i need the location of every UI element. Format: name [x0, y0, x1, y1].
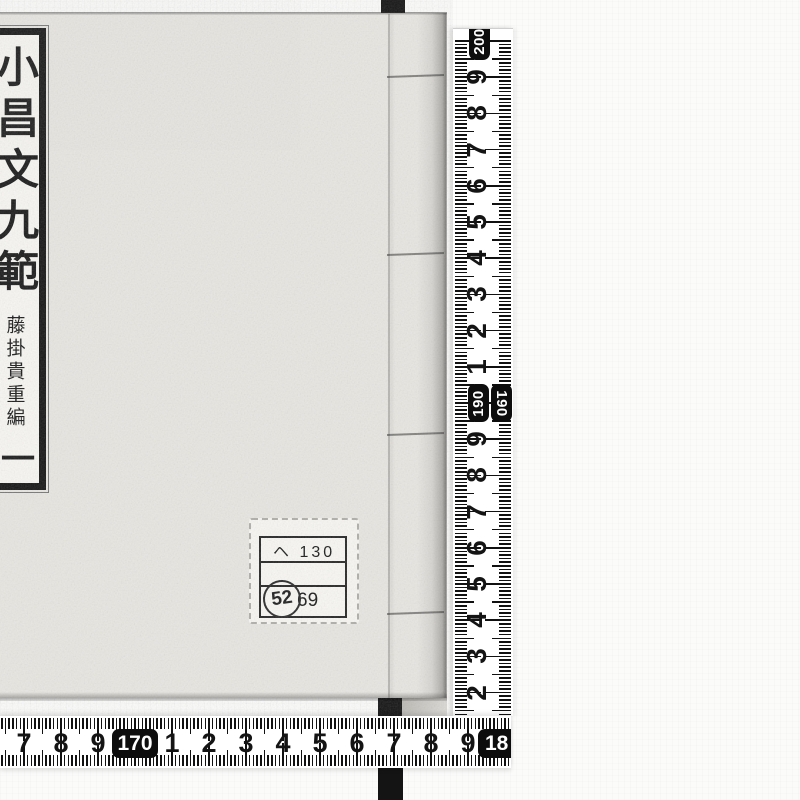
ruler-tick [499, 424, 511, 426]
ruler-label-text: 8 [461, 106, 493, 122]
ruler-tick [190, 750, 192, 766]
ruler-label-text: 9 [460, 728, 475, 759]
ruler-tick [499, 630, 511, 632]
ruler-tick [441, 718, 443, 729]
ruler-tick [499, 199, 511, 201]
book-top-edge [0, 12, 447, 15]
ruler-tick [492, 565, 511, 567]
ruler-tick [499, 500, 511, 502]
ruler-tick [455, 529, 474, 531]
ruler-label-text: 2 [201, 728, 216, 759]
ruler-tick [149, 718, 151, 729]
ruler-decade-label-text: 170 [117, 732, 152, 756]
ruler-tick [499, 652, 511, 654]
ruler-tick [492, 276, 511, 278]
ruler-label-text: 3 [461, 649, 493, 665]
ruler-tick [499, 551, 511, 553]
ruler-label: 1 [157, 729, 187, 758]
ruler-tick [499, 319, 511, 321]
ruler-tick [499, 138, 511, 140]
ruler-tick [499, 688, 511, 690]
ruler-label: 8 [462, 460, 492, 490]
ruler-tick [455, 95, 474, 97]
ruler-tick [5, 718, 7, 734]
ruler-tick [264, 750, 266, 766]
ruler-tick [297, 718, 299, 729]
spine-crease [388, 14, 390, 698]
ruler-tick [455, 638, 474, 640]
sticker-call-number: ヘ 130 [261, 538, 345, 563]
library-sticker: ヘ 130 69 52 [249, 518, 359, 624]
ruler-tick [182, 718, 184, 729]
ruler-tick [499, 359, 511, 361]
ruler-tick [499, 659, 511, 661]
ruler-tick [412, 718, 414, 734]
ruler-label-text: 2 [461, 685, 493, 701]
ruler-tick [42, 718, 44, 734]
ruler-tick [499, 283, 511, 285]
ruler-tick [1, 755, 3, 766]
ruler-tick [260, 718, 262, 729]
ruler-tick [492, 167, 511, 169]
ruler-tick [455, 51, 467, 53]
ruler-label-text: 4 [461, 250, 493, 266]
ruler-label: 7 [462, 135, 492, 165]
ruler-tick [455, 417, 467, 419]
ruler-tick [86, 718, 88, 729]
ruler-tick [499, 428, 511, 430]
ruler-tick [330, 718, 332, 729]
ruler-tick [499, 109, 511, 111]
ruler-tick [42, 750, 44, 766]
ruler-tick [499, 514, 511, 516]
ruler-tick [301, 750, 303, 766]
ruler-tick [499, 460, 511, 462]
ruler-tick [499, 594, 511, 596]
ruler-tick [492, 95, 511, 97]
ruler-tick [338, 718, 340, 734]
ruler-tick [499, 192, 511, 194]
ruler-tick [499, 641, 511, 643]
ruler-tick [455, 239, 474, 241]
ruler-tick [455, 348, 474, 350]
ruler-tick [492, 457, 511, 459]
ruler-tick [499, 598, 511, 600]
ruler-tick [82, 718, 84, 729]
ruler-tick [499, 507, 511, 509]
ruler-tick [449, 750, 451, 766]
ruler-tick [499, 214, 511, 216]
ruler-tick [499, 105, 511, 107]
ruler-tick [308, 718, 310, 729]
ruler-tick [499, 145, 511, 147]
ruler-tick [499, 333, 511, 335]
ruler-tick [499, 73, 511, 75]
ruler-tick [499, 127, 511, 129]
ruler-tick [455, 601, 474, 603]
ruler-tick [499, 337, 511, 339]
ruler-tick [334, 718, 336, 729]
vertical-ruler: 20098765432119019098765432 [453, 28, 513, 716]
ruler-tick [367, 718, 369, 729]
ruler-label: 7 [9, 729, 39, 758]
ruler-tick [160, 718, 162, 729]
ruler-tick [404, 718, 406, 729]
ruler-tick [499, 134, 511, 136]
ruler-tick [127, 718, 129, 729]
ruler-tick [499, 254, 511, 256]
ruler-tick [499, 344, 511, 346]
ruler-tick [499, 572, 511, 574]
ruler-label: 4 [462, 605, 492, 635]
ruler-decade-label-text: 190 [470, 390, 487, 417]
ruler-label-text: 6 [461, 540, 493, 556]
title-label: 小昌文九範 藤掛貴重編 一 [0, 28, 46, 490]
ruler-tick [499, 272, 511, 274]
ruler-tick [499, 84, 511, 86]
ruler-tick [499, 51, 511, 53]
ruler-tick [499, 467, 511, 469]
ruler-tick [186, 718, 188, 729]
ruler-tick [499, 355, 511, 357]
ruler-tick [412, 750, 414, 766]
ruler-tick [489, 718, 491, 729]
ruler-tick [138, 718, 140, 729]
ruler-tick [499, 623, 511, 625]
ruler-tick [499, 301, 511, 303]
ruler-tick [256, 718, 258, 729]
ruler-tick [227, 750, 229, 766]
ruler-tick [345, 718, 347, 729]
ruler-tick [112, 718, 114, 729]
ruler-tick [499, 605, 511, 607]
ruler-tick [499, 323, 511, 325]
ruler-tick [382, 718, 384, 729]
ruler-label-text: 6 [461, 178, 493, 194]
ruler-tick [499, 522, 511, 524]
ruler-label: 8 [46, 729, 76, 758]
ruler-tick [455, 406, 467, 408]
ruler-tick [304, 718, 306, 729]
ruler-tick [499, 446, 511, 448]
ruler-label: 9 [462, 62, 492, 92]
ruler-tick [499, 373, 511, 375]
ruler-tick [142, 718, 144, 729]
ruler-label: 5 [462, 569, 492, 599]
ruler-decade-label: 170 [112, 729, 158, 758]
ruler-tick [492, 239, 511, 241]
ruler-label-text: 4 [461, 612, 493, 628]
ruler-tick [478, 718, 480, 729]
ruler-label: 2 [194, 729, 224, 758]
ruler-tick [493, 718, 495, 729]
ruler-tick [455, 399, 467, 401]
ruler-label: 3 [462, 279, 492, 309]
ruler-tick [492, 203, 511, 205]
ruler-tick [499, 116, 511, 118]
ruler-tick [301, 718, 303, 734]
ruler-tick [499, 247, 511, 249]
ruler-tick [408, 718, 410, 729]
ruler-tick [131, 718, 133, 729]
ruler-tick [452, 718, 454, 729]
ruler-tick [492, 493, 511, 495]
ruler-tick [499, 518, 511, 520]
ruler-tick [8, 718, 10, 729]
ruler-tick [499, 590, 511, 592]
ruler-tick [499, 163, 511, 165]
ruler-tick [499, 80, 511, 82]
ruler-label-text: 9 [90, 728, 105, 759]
ruler-tick [455, 312, 474, 314]
ruler-tick [499, 326, 511, 328]
ruler-tick [12, 718, 14, 729]
ruler-tick [108, 718, 110, 729]
ruler-tick [499, 380, 511, 382]
ruler-tick [499, 453, 511, 455]
ruler-label-text: 1 [164, 728, 179, 759]
ruler-tick [499, 431, 511, 433]
ruler-tick [455, 44, 467, 46]
ruler-tick [234, 718, 236, 729]
ruler-tick [499, 699, 511, 701]
ruler-tick [445, 718, 447, 729]
ruler-tick [499, 261, 511, 263]
ruler-tick [156, 718, 158, 729]
ruler-tick [499, 69, 511, 71]
ruler-label: 4 [268, 729, 298, 758]
ruler-tick [455, 276, 474, 278]
ruler-tick [499, 181, 511, 183]
ruler-tick [49, 718, 51, 729]
ruler-tick [378, 718, 380, 729]
ruler-tick [499, 558, 511, 560]
ruler-tick [79, 718, 81, 734]
ruler-tick [79, 750, 81, 766]
ruler-decade-label-text: 200 [471, 28, 488, 54]
ruler-tick [499, 236, 511, 238]
ruler-tick [499, 152, 511, 154]
ruler-decade-label: 190 [491, 384, 512, 422]
ruler-tick [341, 718, 343, 729]
ruler-label: 4 [462, 243, 492, 273]
ruler-label-text: 3 [461, 287, 493, 303]
ruler-tick [499, 297, 511, 299]
ruler-tick [75, 718, 77, 729]
ruler-label: 5 [305, 729, 335, 758]
ruler-label-text: 7 [461, 142, 493, 158]
ruler-tick [499, 352, 511, 354]
ruler-tick [267, 718, 269, 729]
ruler-tick [499, 442, 511, 444]
ruler-tick [492, 529, 511, 531]
ruler-tick [338, 750, 340, 766]
ruler-tick [499, 464, 511, 466]
ruler-tick [499, 714, 511, 716]
ruler-tick [499, 160, 511, 162]
ruler-tick [190, 718, 192, 734]
ruler-tick [455, 457, 474, 459]
ruler-tick [38, 718, 40, 729]
ruler-tick [499, 533, 511, 535]
ruler-tick [499, 44, 511, 46]
ruler-label: 3 [231, 729, 261, 758]
ruler-tick [499, 370, 511, 372]
ruler-tick [227, 718, 229, 734]
ruler-tick [371, 718, 373, 729]
ruler-tick [455, 710, 474, 712]
ruler-tick [499, 268, 511, 270]
ruler-tick [499, 362, 511, 364]
ruler-tick [499, 47, 511, 49]
ruler-tick [230, 718, 232, 729]
ruler-tick [499, 178, 511, 180]
ruler-label: 2 [462, 316, 492, 346]
ruler-tick [499, 228, 511, 230]
ruler-tick [499, 250, 511, 252]
ruler-tick [499, 91, 511, 93]
ruler-decade-label-text: 18 [485, 732, 508, 756]
ruler-tick [499, 341, 511, 343]
ruler-tick [499, 279, 511, 281]
ruler-label-text: 4 [275, 728, 290, 759]
ruler-tick [499, 62, 511, 64]
ruler-tick [499, 648, 511, 650]
ruler-tick [499, 174, 511, 176]
ruler-decade-label-text: 190 [493, 390, 510, 417]
ruler-tick [499, 706, 511, 708]
ruler-tick [499, 98, 511, 100]
ruler-tick [455, 674, 474, 676]
ruler-tick [375, 750, 377, 766]
ruler-tick [499, 377, 511, 379]
ruler-tick [456, 718, 458, 729]
ruler-tick [34, 718, 36, 729]
ruler-tick [219, 718, 221, 729]
ruler-tick [492, 674, 511, 676]
ruler-label: 3 [462, 641, 492, 671]
ruler-tick [71, 718, 73, 729]
ruler-tick [455, 714, 467, 716]
horizontal-ruler: 78917012345678918 [0, 716, 511, 768]
ruler-tick [455, 203, 474, 205]
ruler-tick [499, 156, 511, 158]
ruler-tick [123, 718, 125, 729]
ruler-label: 1 [462, 352, 492, 382]
ruler-label: 2 [462, 678, 492, 708]
ruler-tick [492, 312, 511, 314]
ruler-tick [492, 638, 511, 640]
ruler-tick [499, 536, 511, 538]
ruler-tick [455, 413, 467, 415]
book-cover [0, 13, 447, 698]
ruler-tick [499, 120, 511, 122]
ruler-tick [499, 504, 511, 506]
ruler-label: 5 [462, 207, 492, 237]
ruler-tick [145, 718, 147, 729]
ruler-tick [499, 616, 511, 618]
ruler-tick [499, 677, 511, 679]
ruler-tick [482, 718, 484, 729]
ruler-tick [499, 569, 511, 571]
ruler-tick [455, 388, 467, 390]
ruler-tick [499, 102, 511, 104]
ruler-tick [499, 286, 511, 288]
ruler-tick [223, 718, 225, 729]
ruler-tick [119, 718, 121, 729]
scanned-book-photo: 小昌文九範 藤掛貴重編 一 ヘ 130 69 52 20098765432119… [0, 0, 800, 800]
ruler-tick [499, 225, 511, 227]
ruler-label-text: 8 [423, 728, 438, 759]
ruler-label: 8 [462, 98, 492, 128]
ruler-tick [499, 232, 511, 234]
ruler-tick [499, 142, 511, 144]
editor-text: 藤掛貴重編 [1, 315, 28, 430]
ruler-tick [499, 218, 511, 220]
ruler-label: 6 [462, 171, 492, 201]
ruler-tick [499, 695, 511, 697]
ruler-tick [197, 718, 199, 729]
ruler-label-text: 1 [461, 359, 493, 375]
ruler-tick [499, 304, 511, 306]
ruler-tick [499, 670, 511, 672]
ruler-tick [455, 131, 474, 133]
ruler-tick [264, 718, 266, 734]
ruler-tick [45, 718, 47, 729]
ruler-tick [499, 561, 511, 563]
ruler-label-text: 9 [461, 431, 493, 447]
ruler-label-text: 5 [461, 576, 493, 592]
ruler-tick [501, 718, 503, 729]
ruler-tick [455, 493, 474, 495]
ruler-label: 6 [462, 533, 492, 563]
ruler-tick [455, 55, 467, 57]
ruler-tick [499, 315, 511, 317]
ruler-tick [499, 685, 511, 687]
ruler-label-text: 5 [312, 728, 327, 759]
ruler-tick [492, 58, 511, 60]
ruler-tick [499, 634, 511, 636]
ruler-tick [499, 703, 511, 705]
ruler-tick [499, 290, 511, 292]
book-bottom-edge [0, 692, 447, 701]
ruler-tick [499, 55, 511, 57]
ruler-tick [1, 718, 3, 729]
ruler-label-text: 2 [461, 323, 493, 339]
ruler-tick [455, 391, 467, 393]
ruler-tick [499, 663, 511, 665]
ruler-tick [455, 565, 474, 567]
ruler-label: 8 [416, 729, 446, 758]
ruler-label: 7 [379, 729, 409, 758]
ruler-tick [497, 718, 499, 729]
ruler-tick [5, 750, 7, 766]
ruler-tick [499, 171, 511, 173]
book-right-edge-shadow [417, 13, 447, 698]
ruler-tick [492, 131, 511, 133]
ruler-label: 6 [342, 729, 372, 758]
ruler-tick [499, 543, 511, 545]
ruler-label-text: 6 [349, 728, 364, 759]
ruler-tick [492, 348, 511, 350]
ruler-tick [499, 482, 511, 484]
ruler-label: 9 [83, 729, 113, 758]
ruler-tick [499, 540, 511, 542]
ruler-tick [499, 87, 511, 89]
ruler-decade-label: 200 [469, 28, 490, 60]
ruler-tick [499, 207, 511, 209]
ruler-tick [455, 47, 467, 49]
